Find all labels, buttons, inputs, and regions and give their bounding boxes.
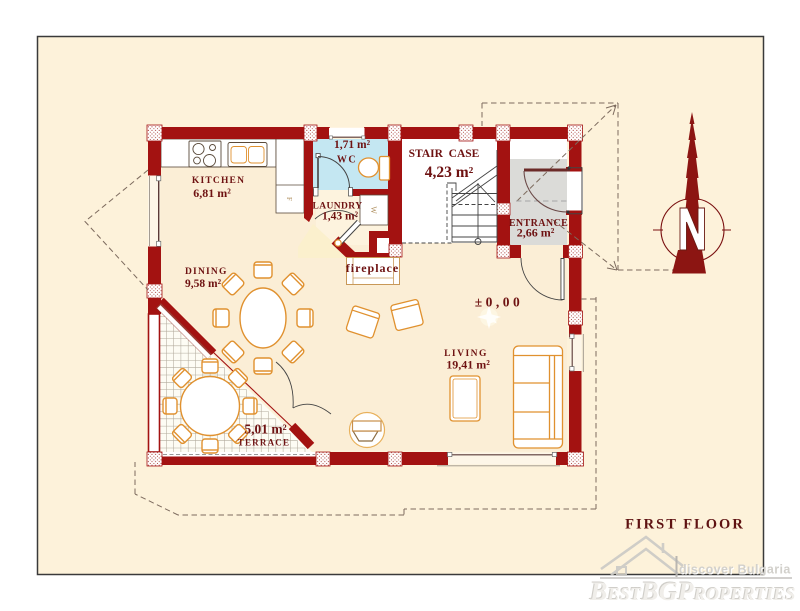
svg-text:9,58 m²: 9,58 m² bbox=[185, 278, 222, 290]
svg-text:F: F bbox=[285, 197, 293, 201]
svg-text:BestBGProperties: BestBGProperties bbox=[589, 577, 796, 606]
svg-text:W: W bbox=[369, 206, 378, 214]
svg-text:WC: WC bbox=[337, 155, 357, 166]
svg-text:4,23 m²: 4,23 m² bbox=[425, 164, 474, 181]
svg-text:DINING: DINING bbox=[185, 267, 228, 277]
svg-text:TERRACE: TERRACE bbox=[238, 438, 290, 448]
svg-text:KITCHEN: KITCHEN bbox=[192, 176, 245, 186]
svg-text:fireplace: fireplace bbox=[346, 261, 399, 275]
svg-text:discover Bulgaria: discover Bulgaria bbox=[679, 563, 791, 577]
svg-text:6,81 m²: 6,81 m² bbox=[193, 186, 231, 200]
svg-text:19,41 m²: 19,41 m² bbox=[446, 358, 490, 372]
svg-text:5,01 m²: 5,01 m² bbox=[244, 422, 286, 437]
svg-text:1,71 m²: 1,71 m² bbox=[334, 139, 371, 151]
svg-text:1,43 m²: 1,43 m² bbox=[322, 211, 359, 223]
svg-text:FIRST FLOOR: FIRST FLOOR bbox=[625, 517, 745, 533]
svg-text:STAIR CASE: STAIR CASE bbox=[409, 148, 480, 160]
svg-text:2,66 m²: 2,66 m² bbox=[517, 226, 555, 240]
svg-text:±0,00: ±0,00 bbox=[475, 295, 524, 310]
